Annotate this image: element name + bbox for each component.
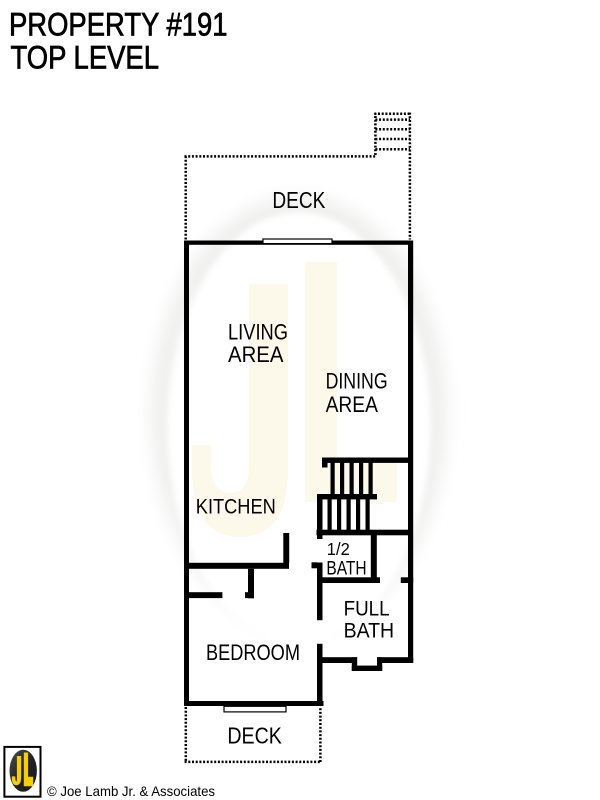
svg-text:FULL: FULL <box>344 598 390 621</box>
svg-text:BATH: BATH <box>326 558 366 579</box>
svg-text:PROPERTY #191: PROPERTY #191 <box>9 6 228 43</box>
svg-text:LIVING: LIVING <box>228 320 288 345</box>
svg-text:DINING: DINING <box>326 368 388 393</box>
svg-text:© Joe Lamb Jr. & Associates: © Joe Lamb Jr. & Associates <box>47 783 215 799</box>
svg-text:AREA: AREA <box>228 342 284 367</box>
svg-text:BEDROOM: BEDROOM <box>206 640 300 665</box>
svg-text:1/2: 1/2 <box>327 539 350 559</box>
svg-text:KITCHEN: KITCHEN <box>196 495 276 518</box>
svg-text:BATH: BATH <box>344 619 395 642</box>
svg-text:DECK: DECK <box>227 723 282 749</box>
svg-text:TOP LEVEL: TOP LEVEL <box>11 39 160 76</box>
svg-text:AREA: AREA <box>326 392 379 417</box>
svg-text:DECK: DECK <box>272 187 326 213</box>
